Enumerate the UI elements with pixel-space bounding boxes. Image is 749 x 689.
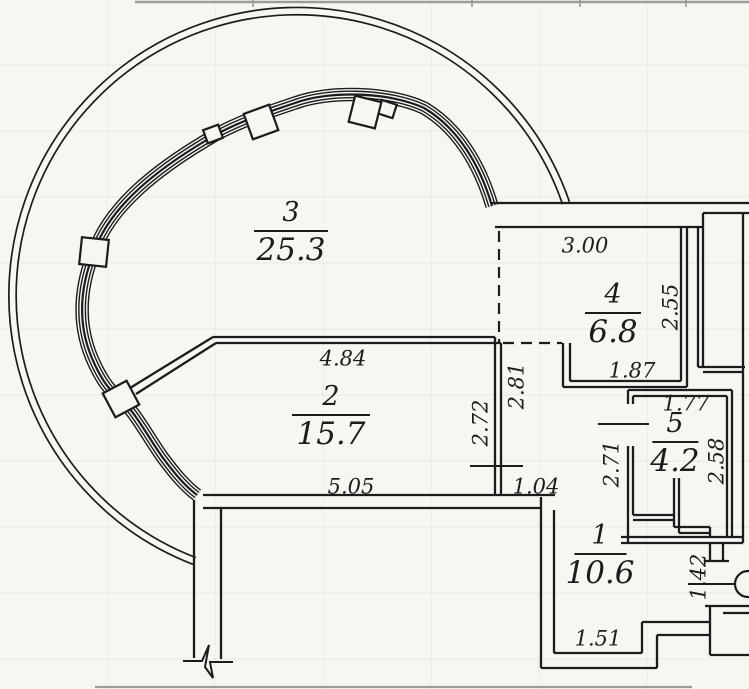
dimension-label: 2.55 (661, 284, 682, 331)
door-circle-icon (735, 571, 749, 597)
room-area: 4.2 (650, 446, 699, 477)
dimension-label: 1.51 (575, 629, 622, 650)
room-label-4: 4 6.8 (585, 281, 641, 348)
curved-outer-wall (12, 11, 566, 561)
room-area: 6.8 (588, 317, 637, 348)
room-area: 25.3 (256, 235, 325, 266)
room-label-2: 2 15.7 (292, 383, 370, 450)
room-area: 10.6 (565, 558, 634, 589)
dimension-label: 1.04 (513, 477, 560, 498)
room-number: 4 (604, 281, 621, 308)
dimension-label: 2.72 (471, 400, 492, 447)
wall-right-section (698, 213, 745, 543)
dimension-label: 2.58 (707, 438, 728, 485)
dimension-label: 5.05 (328, 477, 375, 498)
curved-window-band (82, 94, 492, 495)
floor-plan-page: 3 25.3 2 15.7 4 6.8 5 4.2 1 10.6 3.00 2.… (0, 0, 749, 689)
room-label-1: 1 10.6 (565, 522, 634, 589)
window-joint-tick (203, 125, 223, 144)
dimension-label: 2.81 (507, 363, 528, 410)
wall-break-symbol (183, 645, 233, 678)
dashed-opening-line (499, 231, 562, 343)
wall-top (490, 203, 749, 227)
wall-lower-left-stub (194, 500, 221, 659)
dimension-label: 3.00 (562, 236, 609, 257)
dimension-label: 1.77 (663, 394, 710, 415)
room-number: 1 (591, 522, 608, 549)
wall-entrance (705, 543, 749, 613)
room-number: 3 (282, 199, 299, 226)
dimension-label: 1.42 (689, 554, 710, 601)
room-label-5: 5 4.2 (650, 410, 699, 477)
dimension-label: 1.87 (609, 361, 656, 382)
window-mullion-square (349, 96, 382, 129)
dimension-label: 4.84 (320, 349, 367, 370)
dimension-label: 2.71 (602, 441, 623, 488)
window-mullion-square (79, 237, 109, 267)
room-label-3: 3 25.3 (254, 199, 328, 266)
room-number: 2 (322, 383, 339, 410)
wall-room5-bottom-band (621, 537, 743, 543)
room-area: 15.7 (296, 419, 365, 450)
